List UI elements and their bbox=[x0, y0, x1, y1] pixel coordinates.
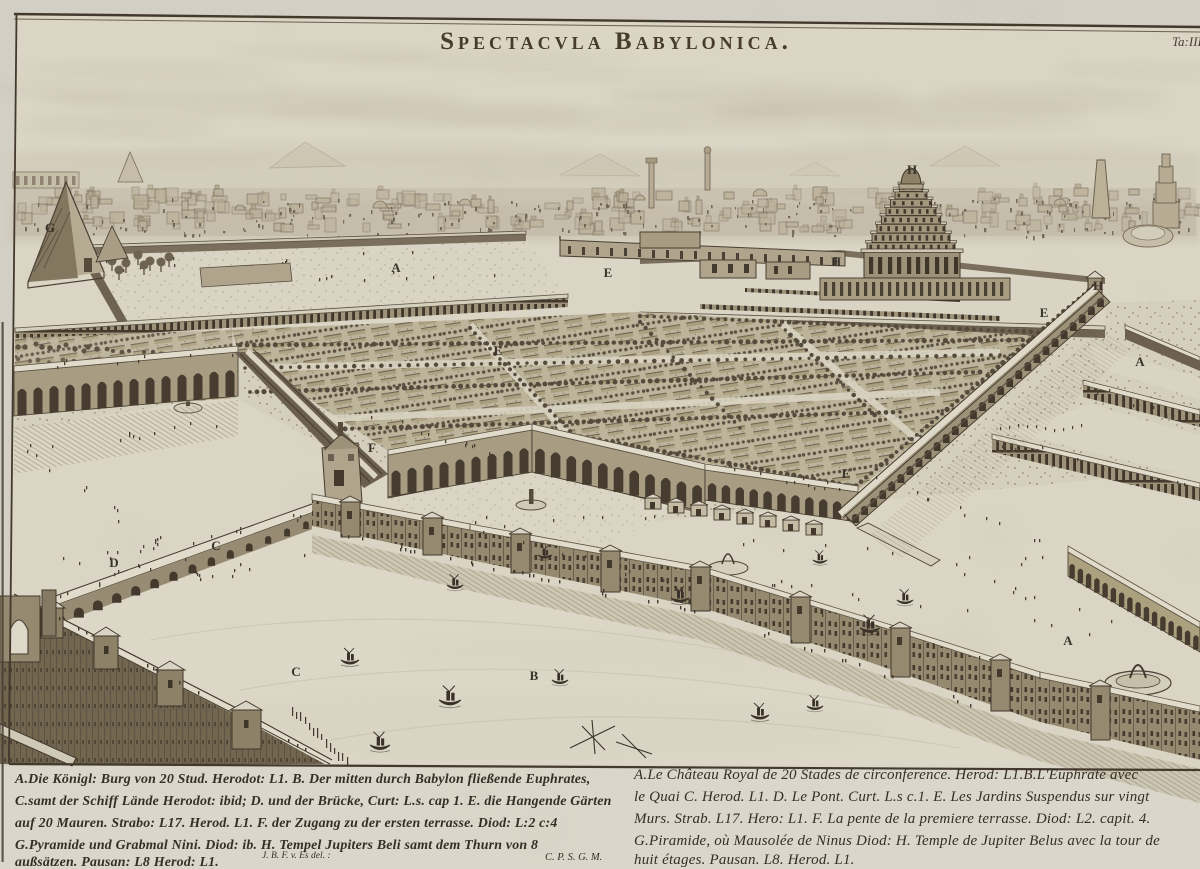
svg-text:E: E bbox=[1040, 305, 1049, 320]
svg-text:A: A bbox=[1063, 633, 1073, 648]
svg-text:H: H bbox=[831, 254, 841, 269]
svg-text:J. B. F. v. Es del. :: J. B. F. v. Es del. : bbox=[262, 851, 331, 861]
svg-text:Murs. Strab. L17. Hero: L1. F.: Murs. Strab. L17. Hero: L1. F. La pente … bbox=[633, 811, 1151, 827]
svg-text:C: C bbox=[211, 538, 220, 553]
svg-text:F: F bbox=[368, 440, 376, 455]
svg-text:C. P. S. G. M.: C. P. S. G. M. bbox=[545, 852, 602, 863]
svg-text:le Quai C. Herod. L1. D. Le P: le Quai C. Herod. L1. D. Le Pont. Curt. … bbox=[634, 789, 1150, 805]
svg-text:G.Piramide, où Mausolée de Nin: G.Piramide, où Mausolée de Ninus Diod: H… bbox=[634, 833, 1160, 849]
svg-text:E: E bbox=[604, 265, 613, 280]
svg-text:D: D bbox=[109, 555, 118, 570]
svg-text:G: G bbox=[45, 220, 55, 235]
svg-text:E: E bbox=[494, 343, 503, 358]
svg-text:H: H bbox=[1093, 278, 1103, 293]
svg-text:B: B bbox=[530, 668, 539, 683]
svg-text:A: A bbox=[1135, 354, 1145, 369]
svg-text:auf 20 Mauren. Strabo: L17. He: auf 20 Mauren. Strabo: L17. Herod. L1. F… bbox=[15, 816, 558, 831]
svg-text:A: A bbox=[391, 260, 401, 275]
svg-text:C: C bbox=[291, 664, 300, 679]
svg-text:Spectacvla Babylonica.: Spectacvla Babylonica. bbox=[440, 28, 792, 55]
svg-text:A.Le Château Royal de 20 Stade: A.Le Château Royal de 20 Stades de circo… bbox=[633, 767, 1138, 783]
svg-text:A.Die Königl: Burg von 20 Stud: A.Die Königl: Burg von 20 Stud. Herodot:… bbox=[14, 772, 590, 787]
svg-text:außsätzen. Pausan: L8 Herod:: außsätzen. Pausan: L8 Herod: L1. bbox=[15, 855, 219, 869]
svg-text:E: E bbox=[842, 466, 851, 481]
svg-text:H: H bbox=[907, 162, 917, 177]
svg-text:huit étages. Pausan. L8. Herod: huit étages. Pausan. L8. Herod. L1. bbox=[634, 852, 855, 868]
svg-text:C.samt der Schiff Lände Herodo: C.samt der Schiff Lände Herodot: ibid; D… bbox=[15, 794, 612, 809]
svg-text:Ta:III: Ta:III bbox=[1172, 34, 1200, 49]
